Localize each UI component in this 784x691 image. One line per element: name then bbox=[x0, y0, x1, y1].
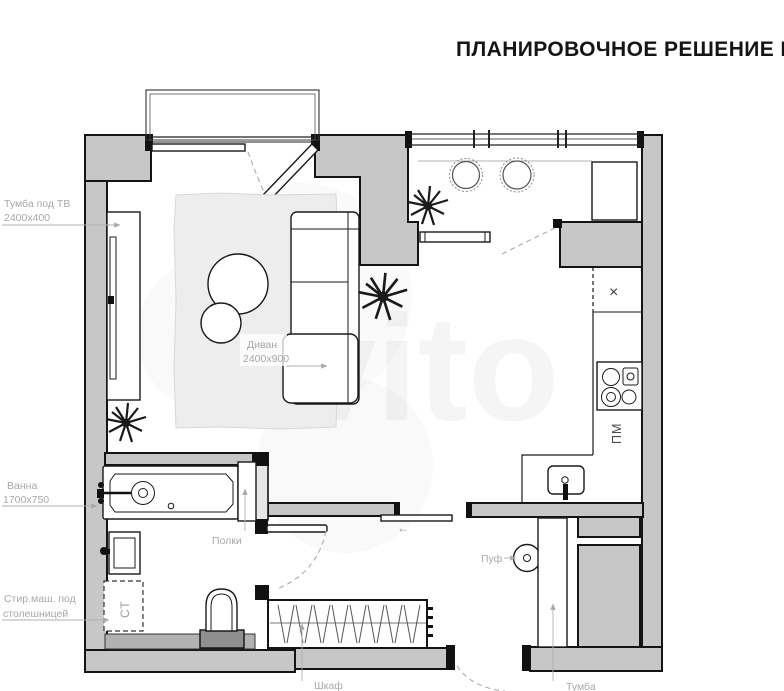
plant-icon bbox=[408, 186, 448, 225]
bath-size: 1700х750 bbox=[3, 494, 49, 506]
wall-corridor-left bbox=[268, 503, 398, 516]
balcony-slider-panel bbox=[152, 144, 245, 151]
washer-label: Стир.маш. под bbox=[4, 593, 76, 605]
wall-top-left-block bbox=[85, 135, 151, 181]
sofa-label: Диван bbox=[247, 339, 277, 351]
washer-label2: столешницей bbox=[3, 608, 68, 620]
wall-bottom-right bbox=[530, 647, 662, 671]
dining-chair bbox=[453, 162, 480, 189]
wall-left bbox=[85, 135, 107, 672]
shelves-label: Полки bbox=[212, 535, 242, 547]
entry-door-swing bbox=[457, 666, 505, 691]
wall-corridor-right bbox=[468, 503, 643, 517]
sliding-door-leaf bbox=[381, 515, 452, 521]
coffee-table-small bbox=[201, 303, 241, 343]
sofa-size: 2400х900 bbox=[243, 353, 289, 365]
shaft-large bbox=[578, 545, 640, 647]
pouf bbox=[514, 545, 541, 572]
sink-faucet bbox=[563, 484, 568, 500]
sofa bbox=[283, 212, 359, 404]
hall-door-swing bbox=[502, 227, 557, 254]
floor-plan: Avito ПЛАНИРОВОЧНОЕ РЕШЕНИЕ № bbox=[0, 0, 784, 691]
wall-bathroom-door-side bbox=[255, 465, 268, 520]
hall-cabinet bbox=[538, 518, 567, 647]
wardrobe bbox=[268, 600, 433, 648]
bath-label: Ванна bbox=[7, 480, 37, 492]
washing-machine-abbr: СТ bbox=[118, 600, 132, 618]
tv-stand-label: Тумба под ТВ bbox=[4, 198, 70, 210]
bathroom: СТ bbox=[97, 462, 256, 649]
wall-bottom-left bbox=[85, 650, 295, 672]
wall-hall-band bbox=[560, 222, 644, 267]
bathroom-door-leaf bbox=[267, 525, 327, 532]
balcony-outline bbox=[146, 90, 319, 140]
tv-mount bbox=[108, 296, 114, 304]
toilet-base bbox=[200, 630, 244, 648]
tv-stand bbox=[107, 212, 140, 400]
balcony-inner bbox=[150, 94, 315, 140]
page-title: ПЛАНИРОВОЧНОЕ РЕШЕНИЕ № bbox=[456, 38, 784, 61]
shelves-unit bbox=[238, 462, 256, 521]
tv-stand-size: 2400х400 bbox=[4, 212, 50, 224]
kitchen-sink bbox=[548, 466, 584, 500]
pouf-label: Пуф bbox=[481, 553, 503, 565]
shaft-small bbox=[578, 517, 640, 537]
balcony-door-swing bbox=[248, 152, 266, 196]
dining-chair bbox=[503, 161, 531, 189]
plant-icon bbox=[106, 403, 146, 442]
entry-closet bbox=[592, 162, 637, 220]
sliding-door-arrow-icon: ← bbox=[397, 521, 409, 535]
bathtub bbox=[97, 466, 238, 519]
wardrobe-label: Шкаф bbox=[314, 680, 343, 691]
dining-table bbox=[420, 232, 490, 242]
wall-right bbox=[642, 135, 662, 671]
counter-cross-icon: × bbox=[609, 284, 618, 301]
cabinet-label: Тумба bbox=[566, 681, 596, 691]
dishwasher-abbr: ПМ bbox=[610, 423, 624, 444]
stove bbox=[597, 362, 642, 410]
basin-faucet bbox=[100, 547, 108, 555]
toilet bbox=[200, 589, 244, 648]
